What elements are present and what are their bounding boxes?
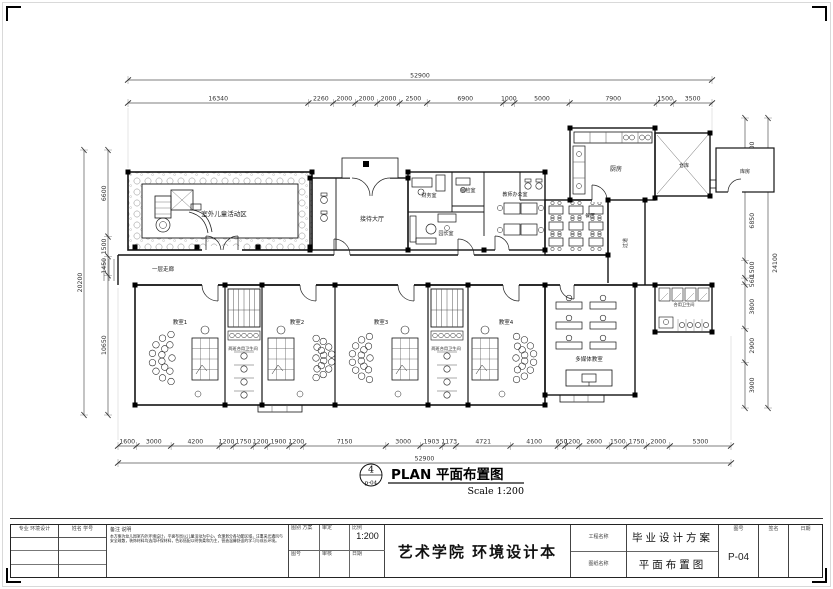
column-mark [195,245,200,250]
furniture-circle [149,359,156,366]
plan-rect [569,206,583,214]
furniture-circle [426,224,436,234]
column-mark [708,131,713,136]
column-mark [543,248,548,253]
plan-rect [258,405,302,412]
tb-scale-value: 1:200 [352,532,383,541]
column-mark [653,283,658,288]
door-arc [300,285,316,301]
dim-label: 2900 [749,338,756,354]
furniture-circle [167,368,174,375]
column-mark [653,330,658,335]
dim-label: 3500 [685,96,701,103]
dim-label: 6850 [749,213,756,229]
furniture-circle [365,366,372,373]
furniture-circle [598,233,601,236]
drawing-sheet: 5290016340226020002000200025006900100050… [0,0,833,589]
plan-rect [560,395,604,402]
plan-rect [456,178,470,185]
furniture-circle [361,363,368,370]
furniture-circle [687,322,692,327]
furniture-circle [153,368,160,375]
furniture-circle [536,183,542,189]
tb-cell-tuhao: 图号 [289,551,320,577]
room-label-classroom2: 教室2 [290,318,305,326]
tb-class-column: 专业 环境设计 [11,525,59,577]
furniture-circle [600,315,606,321]
furniture-circle [248,333,253,338]
dim-label: 3800 [749,299,756,315]
dim-label: 10650 [101,335,108,355]
tb-sheetno-column: 图号 P-04 [719,525,759,577]
plan-rect [191,204,201,210]
furniture-circle [598,215,601,218]
furniture-circle [630,135,635,140]
furniture-circle [497,205,502,210]
room-label-wing-bath: 合用卫生间 [674,301,695,308]
furniture-circle [460,187,465,192]
furniture-circle [445,333,450,338]
plan-rect [549,206,563,214]
tb-sign-column: 签名 [759,525,789,577]
column-mark [333,403,338,408]
furniture-circle [514,366,521,373]
furniture-circle [451,333,456,338]
furniture-circle [153,341,160,348]
sheet-no-label: 图号 [719,525,758,537]
column-mark [633,283,638,288]
furniture-circle [591,247,594,250]
column-mark [133,403,138,408]
room-label-classroom1: 教室1 [173,318,188,326]
plan-rect [504,203,520,214]
door-arc [189,212,208,233]
column-mark [308,176,313,181]
plan-rect [436,175,445,191]
door-gap [300,283,316,287]
dim-label: 650 [556,439,568,446]
dim-label: 1500 [749,261,756,277]
furniture-circle [236,333,241,338]
column-mark [466,283,471,288]
door-gap [560,283,574,287]
furniture-circle [201,326,209,334]
furniture-circle [328,359,335,366]
furniture-circle [444,353,450,359]
furniture-circle [551,231,554,234]
dim-label: 2260 [313,96,329,103]
furniture-circle [558,247,561,250]
furniture-circle [513,376,520,383]
column-mark [543,170,548,175]
furniture-circle [663,319,668,324]
furniture-circle [444,379,450,385]
furniture-circle [521,373,528,380]
furniture-circle [558,233,561,236]
furniture-circle [444,366,450,372]
furniture-circle [367,355,374,362]
furniture-circle [514,343,521,350]
furniture-circle [159,375,166,382]
door-arc [495,236,509,250]
sheet-no: P-04 [728,537,749,577]
furniture-circle [530,359,537,366]
door-gap [482,236,486,248]
plan-rect [412,178,432,187]
tb-col2-header: 姓名 学号 [59,525,106,538]
plan-rect [573,146,585,194]
tb-empty-row [11,538,58,551]
furniture-circle [313,374,320,381]
furniture-circle [578,215,581,218]
tb-project-label: 工程名称 [571,525,626,552]
furniture-circle [695,322,700,327]
furniture-circle [598,231,601,234]
furniture-circle [646,135,651,140]
furniture-circle [571,231,574,234]
tb-empty-row [11,565,58,577]
door-arc [592,185,607,200]
door-gap [495,248,509,252]
furniture-circle [169,355,176,362]
furniture-circle [578,233,581,236]
room-label-teacher-office: 教师办公室 [502,191,527,198]
furniture-circle [558,217,561,220]
plan-title-text: PLAN 平面布置图 [391,466,503,483]
tb-empty-row [59,551,106,564]
dim-label: 2000 [359,96,375,103]
dim-label: 1500 [101,238,108,254]
column-mark [466,403,471,408]
plan-rect [590,322,616,329]
furniture-circle [352,367,359,374]
plan-rect [556,322,582,329]
column-mark [568,198,573,203]
furniture-circle [358,373,365,380]
furniture-circle [598,247,601,250]
tb-drawing-label: 图纸名称 [571,552,626,578]
furniture-circle [519,347,526,354]
plan-rect [672,288,683,301]
plan-rect [545,200,608,255]
furniture-circle [527,367,534,374]
column-mark [333,283,338,288]
furniture-circle [349,359,356,366]
wall-line [686,293,694,301]
door-arc [202,285,218,301]
room-label-kitchen: 厨房 [610,165,622,173]
furniture-circle [551,201,554,204]
furniture-circle [551,215,554,218]
tb-cell-riqi: 日期 [350,551,385,577]
tb-empty-row [11,551,58,564]
furniture-circle [321,215,328,222]
plan-rect [410,216,416,242]
furniture-circle [598,217,601,220]
door-gap [728,190,742,194]
plan-rect [589,222,603,230]
dim-label: 1750 [629,439,645,446]
plan-rect [569,222,583,230]
canopy-column [363,161,369,167]
furniture-circle [395,391,401,397]
date-label: 日期 [789,527,822,533]
dim-label: 1750 [236,439,252,446]
column-mark [133,283,138,288]
door-gap [458,253,474,257]
dim-label: 1500 [657,96,673,103]
dim-label: 2500 [406,96,422,103]
plan-rect [521,224,537,235]
plan-rect [416,238,436,244]
dim-label: 52900 [415,456,435,463]
dim-label: 1450 [101,258,108,274]
column-mark [710,283,715,288]
dim-label: 24100 [772,253,779,273]
door-arc [352,178,370,196]
plan-rect [549,222,563,230]
tb-notes-text: 本方案为幼儿园室内外环境设计，平面布局以儿童活动为中心，合理划分各功能区域，注重… [110,534,285,544]
dim-label: 3000 [146,439,162,446]
door-gap [334,253,350,257]
furniture-circle [314,344,321,351]
furniture-circle [591,215,594,218]
door-arc [372,178,390,196]
plan-linework: 5290016340226020002000200025006900100050… [77,73,779,468]
column-mark [426,283,431,288]
furniture-circle [230,333,235,338]
project-title: 艺术学院 环境设计本 [398,541,557,562]
furniture-circle [578,231,581,234]
furniture-circle [591,233,594,236]
room-label-shared-bath1: 两班合用卫生间 [228,345,257,352]
dim-label: 5000 [534,96,550,103]
door-arc [458,239,474,255]
column-mark [568,126,573,131]
tb-empty-row [59,538,106,551]
dim-label: 3900 [749,377,756,393]
furniture-circle [591,217,594,220]
door-gap [350,176,390,180]
door-gap [202,246,242,254]
furniture-circle [241,392,247,398]
furniture-circle [254,333,259,338]
plan-rect [525,179,531,182]
furniture-circle [566,315,572,321]
plan-rect [685,288,696,301]
plan-rect [716,148,774,192]
furniture-circle [168,331,175,338]
furniture-circle [325,366,332,373]
room-label-inspection: 晨检室 [460,187,475,194]
column-mark [223,403,228,408]
dim-label: 1900 [271,439,287,446]
plan-rect [589,238,603,246]
plan-rect [698,288,709,301]
furniture-circle [640,135,645,140]
tb-cell-shending: 审定 [320,525,350,551]
room-label-classroom4: 教室4 [499,318,514,326]
furniture-circle [600,295,606,301]
plan-rect [536,179,542,182]
furniture-circle [361,347,368,354]
dim-label: 1903 [424,439,440,446]
plan-rect [659,288,670,301]
furniture-circle [551,217,554,220]
room-label-corridor: 一层走廊 [152,265,175,273]
column-mark [406,170,411,175]
room-label-media-room: 多媒体教室 [575,355,603,363]
furniture-circle [241,379,247,385]
dim-label: 7900 [605,96,621,103]
furniture-circle [418,189,424,195]
furniture-circle [571,233,574,236]
wall-line [660,293,668,301]
dim-label: 2000 [381,96,397,103]
column-mark [126,170,131,175]
furniture-circle [277,326,285,334]
scheme-title: 毕业设计方案 [627,525,718,552]
plan-rect [135,285,545,405]
sign-label: 签名 [759,527,788,533]
furniture-circle [321,197,328,204]
column-mark [133,245,138,250]
plan-rect [590,342,616,349]
furniture-circle [525,183,531,189]
dim-label: 16340 [208,96,228,103]
furniture-circle [365,343,372,350]
furniture-circle [439,333,444,338]
furniture-circle [578,247,581,250]
furniture-circle [481,326,489,334]
door-gap [202,283,218,287]
furniture-circle [444,392,450,398]
column-mark [710,330,715,335]
furniture-circle [433,333,438,338]
furniture-circle [168,378,175,385]
dim-label: 52900 [410,73,430,80]
sheet-divider-line [10,518,823,519]
column-mark [260,403,265,408]
dim-label: 2600 [586,439,602,446]
column-mark [260,283,265,288]
plan-scale-text: Scale 1:200 [467,486,524,497]
tb-project-title-cell: 艺术学院 环境设计本 [385,525,571,577]
plan-rect [570,128,655,200]
furniture-circle [499,391,505,397]
plan-rect [321,193,327,196]
dim-label: 7150 [337,439,353,446]
dim-label: 560 [749,275,756,287]
plan-number: 4 [368,465,374,476]
room-label-classroom3: 教室3 [374,318,389,326]
furniture-circle [624,135,629,140]
column-mark [543,283,548,288]
column-mark [543,403,548,408]
dim-label: 4721 [475,439,491,446]
plan-rect [142,184,298,238]
column-mark [426,403,431,408]
furniture-circle [328,351,335,358]
dim-label: 4100 [526,439,542,446]
plan-rect [321,211,327,214]
tb-cell-tubie: 图别 方案 [289,525,320,551]
column-mark [310,170,315,175]
furniture-circle [156,218,170,232]
furniture-circle [577,152,582,157]
furniture-circle [497,227,502,232]
furniture-circle [313,335,320,342]
dim-label: 3000 [395,439,411,446]
tb-scheme-column: 毕业设计方案 平面布置图 [627,525,719,577]
plan-rect [431,331,463,340]
furniture-circle [457,333,462,338]
dim-label: 6900 [457,96,473,103]
plan-rect [569,238,583,246]
column-mark [606,253,611,258]
column-mark [653,196,658,201]
dim-label: 1600 [119,439,135,446]
furniture-circle [149,350,156,357]
furniture-circle [241,366,247,372]
furniture-circle [551,247,554,250]
plan-rect [590,302,616,309]
dim-label: 2000 [650,439,666,446]
canopy [342,158,398,178]
column-mark [223,283,228,288]
furniture-circle [320,338,327,345]
furniture-circle [577,184,582,189]
dim-label: 2000 [337,96,353,103]
furniture-circle [513,355,520,362]
dim-label: 5300 [693,439,709,446]
furniture-circle [551,233,554,236]
furniture-circle [297,391,303,397]
plan-rect [228,331,260,340]
door-gap [398,283,414,287]
plan-rect [155,196,171,218]
dim-label: 1500 [610,439,626,446]
column-mark [653,126,658,131]
plan-rect [521,203,537,214]
room-label-outdoor-play: 室外儿童活动区 [201,209,247,218]
plan-rect [659,317,673,328]
furniture-circle [600,335,606,341]
wall-line [673,293,681,301]
plan-rect [556,302,582,309]
furniture-circle [401,326,409,334]
door-gap [503,283,519,287]
tb-empty-row [59,565,106,577]
furniture-circle [195,391,201,397]
column-mark [708,194,713,199]
furniture-circle [320,371,327,378]
room-label-passage: 过道 [622,238,629,248]
furniture-circle [566,335,572,341]
plan-rect [438,214,456,222]
title-block: 专业 环境设计 姓名 学号 备注 说明 本方案为幼儿园室内外环境设计，平面布局以… [10,524,823,578]
furniture-circle [558,215,561,218]
room-label-shared-bath2: 两班合用卫生间 [431,345,460,352]
tb-notes-cell: 备注 说明 本方案为幼儿园室内外环境设计，平面布局以儿童活动为中心，合理划分各功… [107,525,289,577]
furniture-circle [513,333,520,340]
tb-label-column: 工程名称 图纸名称 [571,525,627,577]
room-labels: 室外儿童活动区 接待大厅 财务室 晨检室 教师办公室 园长室 厨房 仓库 库房 … [152,162,750,363]
furniture-circle [591,231,594,234]
furniture-circle [349,350,356,357]
door-arc [193,210,212,232]
furniture-circle [352,343,359,350]
